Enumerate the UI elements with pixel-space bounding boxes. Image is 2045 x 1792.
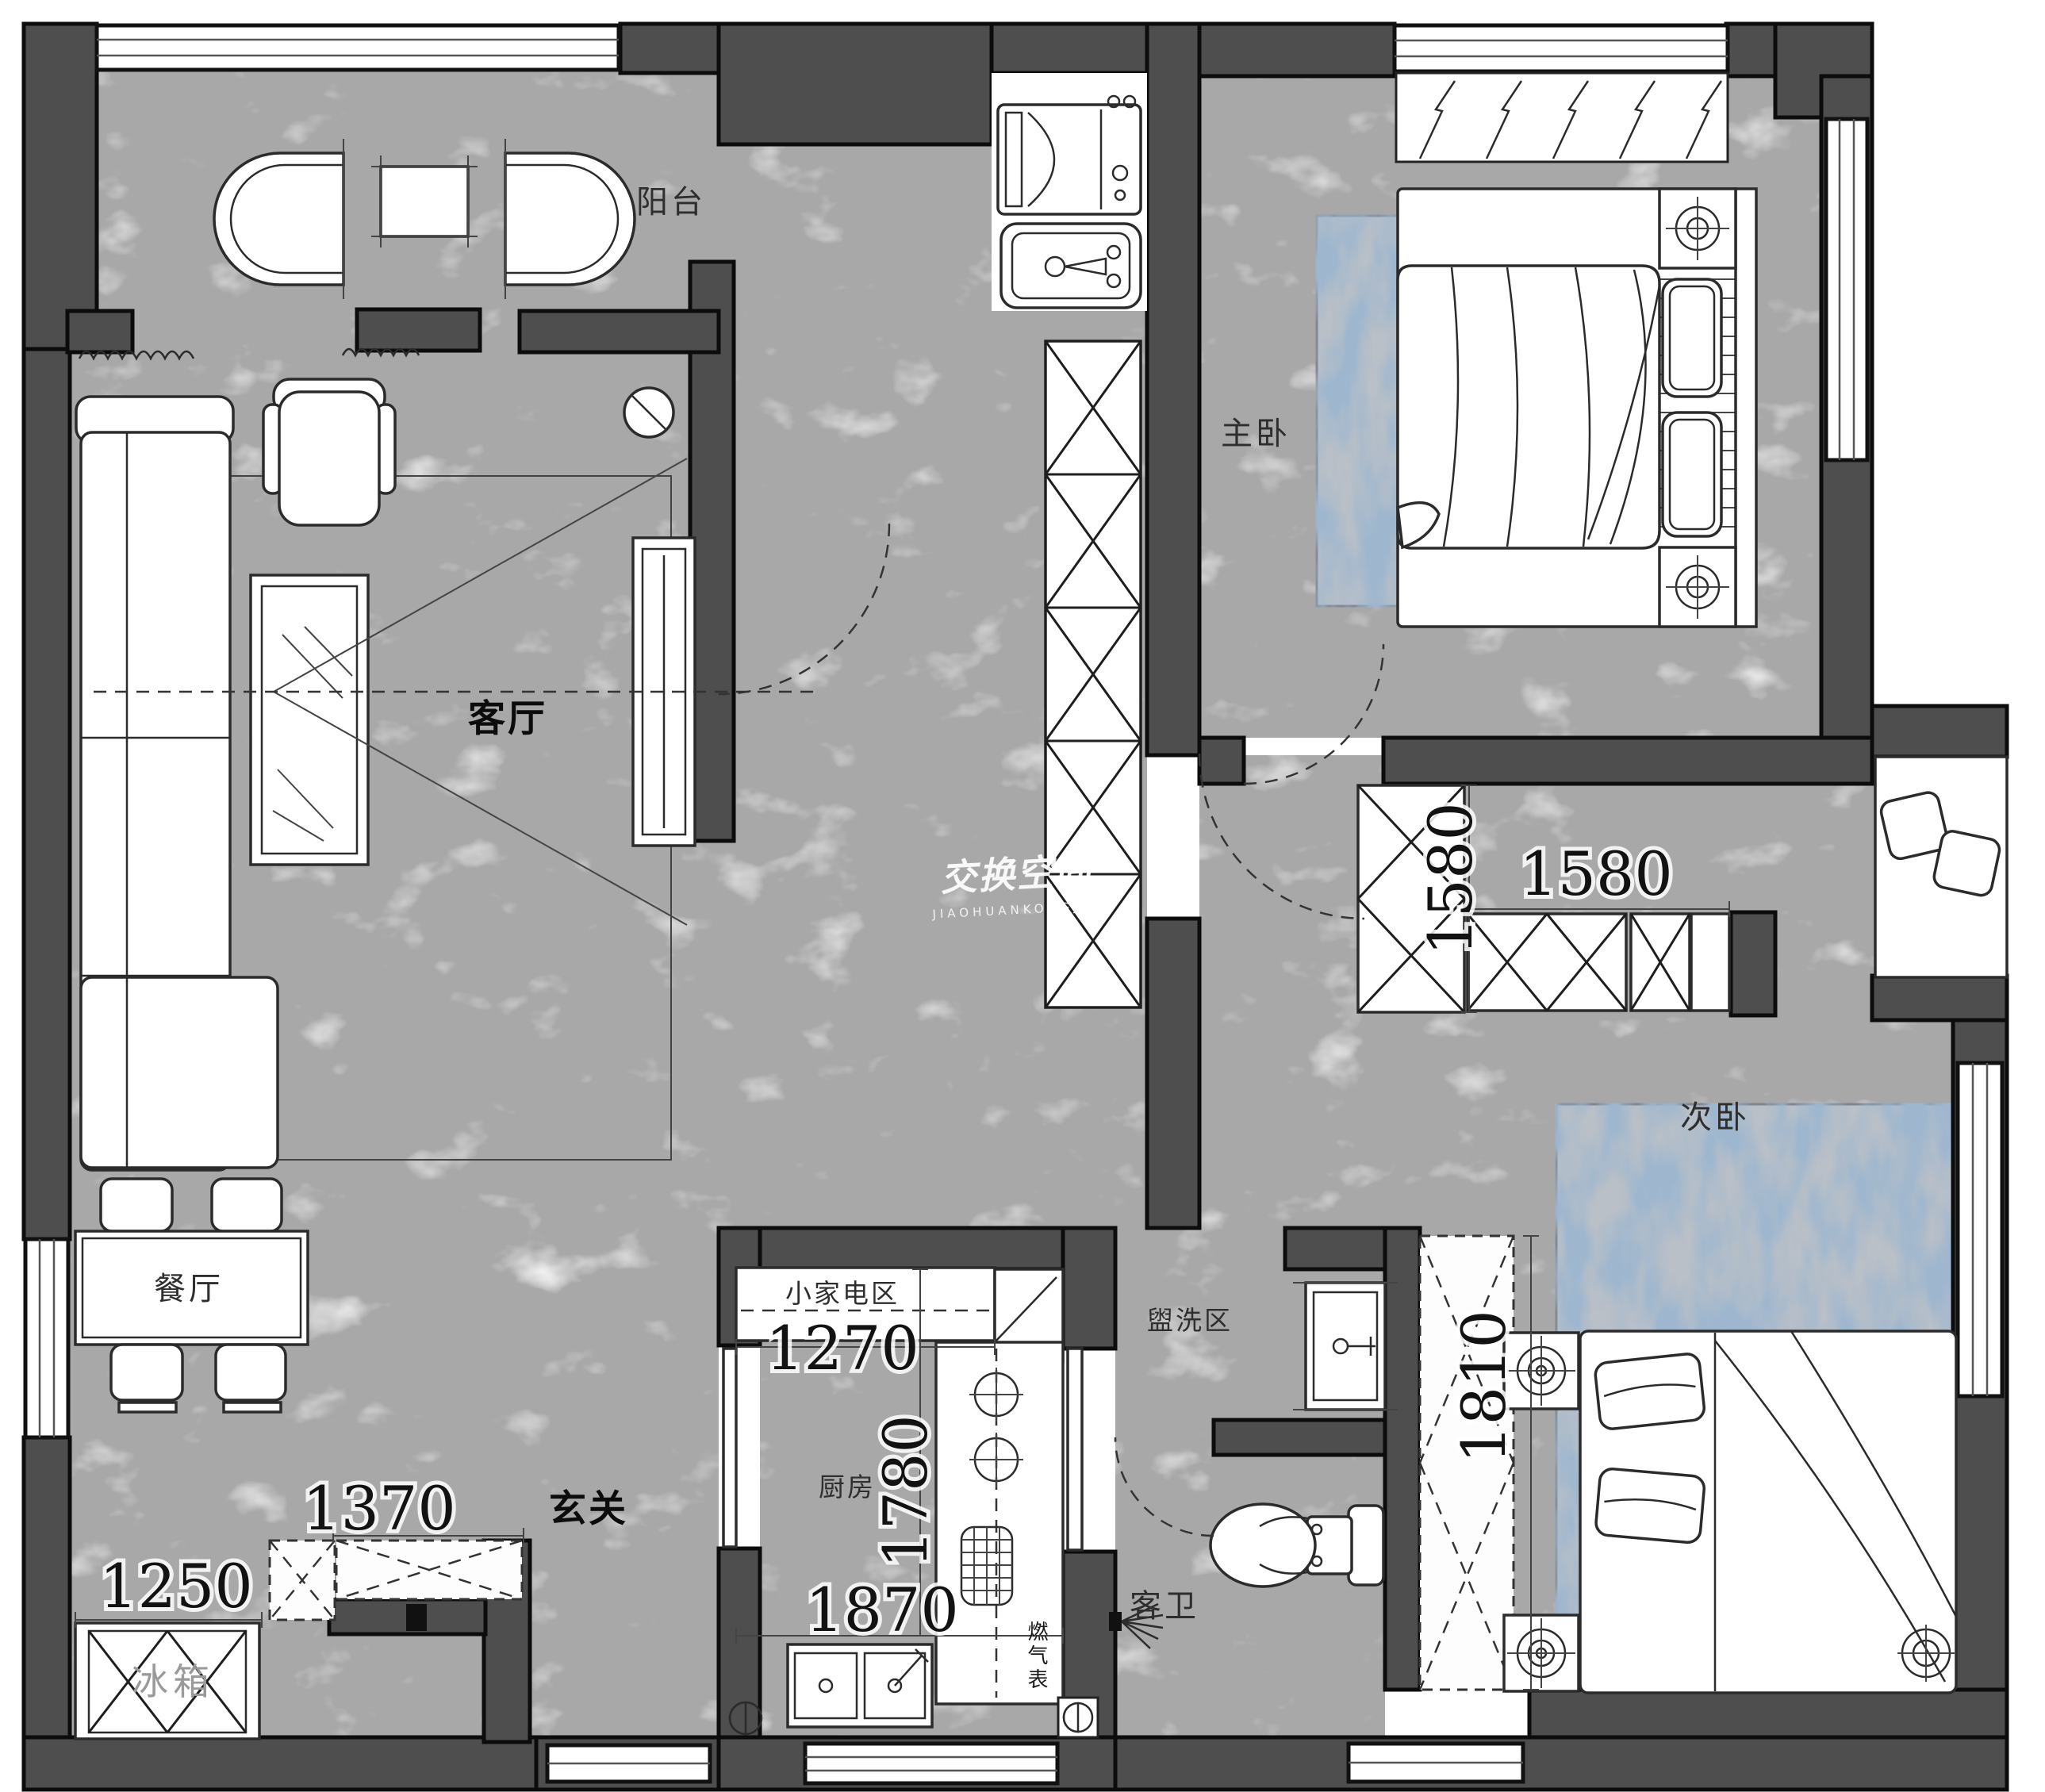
washing-machine xyxy=(998,96,1141,214)
bay-window-seat xyxy=(1875,757,2007,977)
master-duvet xyxy=(1398,266,1659,548)
master-window xyxy=(1395,25,1728,71)
label-guest-bathroom: 客卫 xyxy=(1130,1588,1199,1625)
dim-1580-column: 1580 xyxy=(1415,802,1486,955)
label-balcony: 阳台 xyxy=(636,184,706,221)
headboard xyxy=(1736,189,1756,627)
label-small-appliance: 小家电区 xyxy=(785,1278,900,1309)
dining-chair xyxy=(216,1345,286,1400)
kitchen-door-panel xyxy=(1068,1349,1082,1550)
label-washing-area: 盥洗区 xyxy=(1147,1305,1233,1336)
ceiling-light-icon xyxy=(624,388,673,437)
dim-1580-row: 1580 xyxy=(1519,838,1672,909)
wall-fixture xyxy=(406,1604,427,1631)
balcony-window xyxy=(97,25,619,70)
dim-1870: 1870 xyxy=(805,1575,958,1645)
armchair xyxy=(263,379,395,525)
floor-plan-page: 阳台 主卧 客厅 餐厅 玄关 厨房 客卫 盥洗区 次卧 小家电区 冰箱 燃气表 … xyxy=(0,0,2045,1792)
wardrobe-row xyxy=(1468,914,1729,1011)
dim-1270: 1270 xyxy=(765,1313,919,1383)
label-second-bedroom: 次卧 xyxy=(1680,1099,1750,1136)
balcony-table xyxy=(371,155,478,248)
pillow xyxy=(1594,1353,1705,1429)
toilet xyxy=(1211,1504,1383,1587)
shoe-cabinet-small xyxy=(270,1541,335,1620)
bathroom-window xyxy=(1349,1744,1523,1782)
kitchen-double-sink xyxy=(788,1644,932,1727)
coffee-table xyxy=(251,575,368,865)
kitchen-window xyxy=(805,1744,1057,1783)
label-dining-room: 餐厅 xyxy=(154,1271,224,1307)
laundry-fixtures xyxy=(992,73,1147,311)
master-side-window xyxy=(1826,119,1867,460)
curtain-icon xyxy=(1396,73,1728,162)
nightstand xyxy=(1504,1615,1579,1691)
dining-chair xyxy=(212,1179,282,1231)
master-bedroom-furniture xyxy=(1398,189,1756,627)
pillow xyxy=(1663,279,1721,397)
watermark: 交换空间 JIAOHUANKONGJIAN xyxy=(929,848,1114,922)
tv-cabinet xyxy=(633,538,695,846)
label-fridge: 冰箱 xyxy=(132,1660,214,1703)
dining-chair xyxy=(111,1345,182,1400)
dim-1250: 1250 xyxy=(99,1551,252,1621)
shoe-cabinet-long xyxy=(336,1541,522,1599)
nightstand xyxy=(1659,547,1736,627)
chair-base xyxy=(119,1403,176,1412)
dining-chair xyxy=(101,1179,172,1231)
chair-base xyxy=(224,1403,281,1412)
utility-sink xyxy=(1001,224,1141,308)
label-gas-meter: 燃气表 xyxy=(1024,1621,1048,1692)
second-bedroom-window xyxy=(1958,1063,2002,1396)
pillow xyxy=(1595,1468,1705,1543)
floor-plan-drawing: 阳台 主卧 客厅 餐厅 玄关 厨房 客卫 盥洗区 次卧 小家电区 冰箱 燃气表 … xyxy=(0,0,2045,1792)
vanity-sink xyxy=(1293,1283,1398,1410)
foyer-door-panel xyxy=(723,1349,736,1547)
pillow xyxy=(1663,413,1721,536)
dim-1780: 1780 xyxy=(870,1414,941,1568)
dim-1370: 1370 xyxy=(302,1473,455,1544)
foyer-window xyxy=(547,1745,710,1782)
nightstand xyxy=(1659,189,1736,268)
floor-drain-icon xyxy=(1058,1698,1098,1737)
watermark-text: 交换空间 xyxy=(939,849,1097,900)
label-living-room: 客厅 xyxy=(468,697,547,741)
label-foyer: 玄关 xyxy=(549,1487,628,1531)
pillow xyxy=(1932,829,2001,897)
label-master-bedroom: 主卧 xyxy=(1221,416,1291,452)
label-kitchen: 厨房 xyxy=(819,1472,876,1502)
dim-1810: 1810 xyxy=(1448,1310,1519,1463)
dining-window xyxy=(25,1239,68,1437)
